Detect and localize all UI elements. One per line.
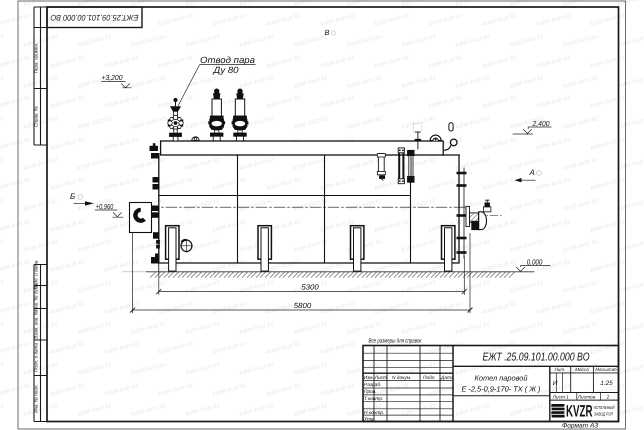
svg-text:Т.контр.: Т.контр.	[364, 396, 383, 402]
svg-text:1: 1	[566, 395, 569, 401]
svg-text:Пров.: Пров.	[364, 389, 377, 395]
svg-text:ЕЖТ .25.09.101.00.000 ВО: ЕЖТ .25.09.101.00.000 ВО	[483, 352, 590, 364]
svg-text:Взам. инв. №: Взам. инв. №	[34, 310, 39, 338]
svg-text:2: 2	[606, 395, 610, 401]
svg-text:И: И	[553, 380, 558, 387]
svg-text:Котел паровой: Котел паровой	[474, 374, 527, 383]
svg-text:Лит.: Лит.	[554, 367, 566, 372]
svg-text:Перв. примен.: Перв. примен.	[34, 43, 39, 74]
svg-text:Масса: Масса	[575, 367, 589, 372]
svg-text:Е -2,5-0,9-170- ТХ ( Ж ): Е -2,5-0,9-170- ТХ ( Ж )	[461, 385, 541, 394]
svg-text:Справ. №: Справ. №	[34, 106, 39, 127]
svg-text:А: А	[529, 168, 535, 177]
svg-text:Подп. и дата: Подп. и дата	[34, 343, 39, 372]
svg-text:ЗАВОД РЭП: ЗАВОД РЭП	[594, 412, 614, 417]
svg-text:N докум.: N докум.	[392, 375, 411, 381]
svg-text:+3,200: +3,200	[102, 73, 124, 82]
svg-text:Листов: Листов	[577, 395, 596, 401]
svg-text:Лист: Лист	[374, 375, 387, 381]
svg-text:Н.контр.: Н.контр.	[364, 410, 384, 416]
svg-text:Все размеры для справок: Все размеры для справок	[369, 338, 423, 345]
svg-text:КОТЕЛЬНЫЙ: КОТЕЛЬНЫЙ	[594, 405, 615, 410]
svg-text:KVZR: KVZR	[566, 403, 593, 421]
svg-text:Ду 80: Ду 80	[212, 65, 238, 75]
svg-text:1:25: 1:25	[600, 380, 613, 387]
svg-text:Инв. № дубл.: Инв. № дубл.	[34, 283, 39, 311]
svg-text:Дата: Дата	[440, 375, 454, 381]
svg-text:Отвод пара: Отвод пара	[200, 55, 255, 65]
svg-text:Б: Б	[70, 192, 75, 201]
svg-text:В: В	[325, 28, 330, 37]
svg-text:Разраб.: Разраб.	[364, 382, 381, 388]
svg-text:Формат А3: Формат А3	[562, 423, 598, 430]
svg-text:5800: 5800	[294, 301, 312, 310]
svg-text:Изм.: Изм.	[364, 375, 374, 381]
svg-text:Масштаб: Масштаб	[595, 367, 617, 372]
svg-text:Лист: Лист	[552, 395, 565, 401]
svg-text:Утв.: Утв.	[364, 416, 375, 422]
svg-text:Подп.: Подп.	[423, 375, 436, 381]
svg-text:Инв. № подл.: Инв. № подл.	[34, 384, 39, 413]
svg-text:ЕЖТ.25.09.101.00.000 ВО: ЕЖТ.25.09.101.00.000 ВО	[51, 13, 139, 22]
svg-text:5300: 5300	[301, 283, 319, 292]
